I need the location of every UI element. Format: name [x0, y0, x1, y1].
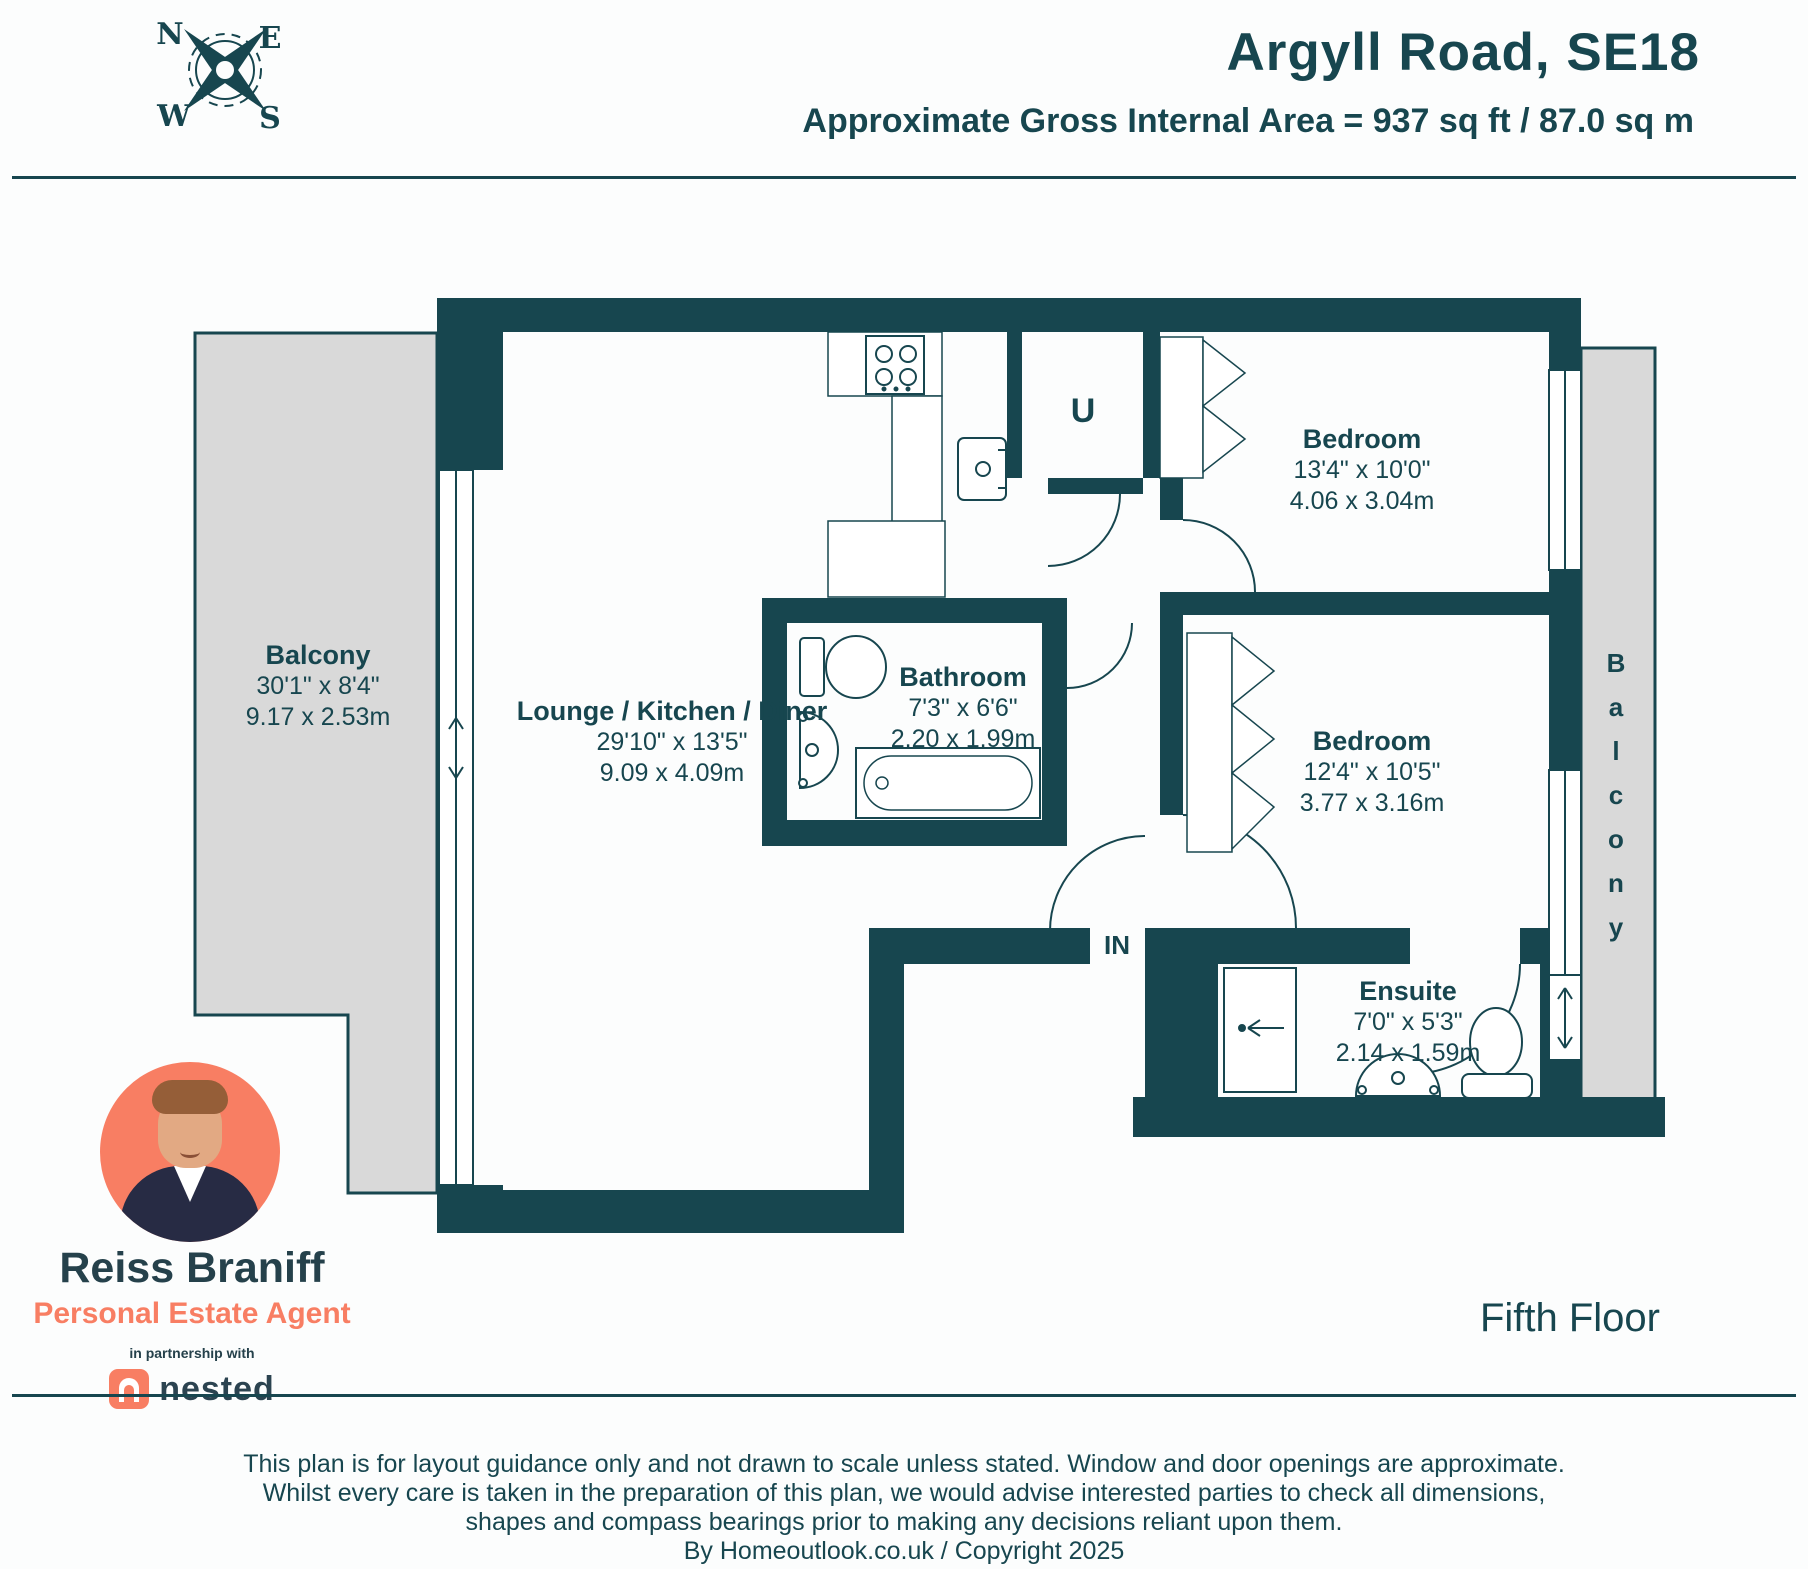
entrance-label: IN — [1104, 930, 1130, 961]
shower-icon — [1224, 968, 1296, 1092]
disclaimer-line: By Homeoutlook.co.uk / Copyright 2025 — [0, 1537, 1808, 1566]
room-label-ensuite: Ensuite 7'0" x 5'3" 2.14 x 1.59m — [1336, 976, 1481, 1069]
room-label-bedroom2: Bedroom 12'4" x 10'5" 3.77 x 3.16m — [1300, 726, 1445, 819]
door-arc-bathroom — [1067, 623, 1132, 688]
door-arc-kitchen-hall — [1048, 494, 1120, 566]
floorplan-page: N E W S Argyll Road, SE18 Approximate Gr… — [0, 0, 1808, 1569]
agent-name: Reiss Braniff — [20, 1244, 364, 1293]
nested-brand-name: nested — [159, 1370, 275, 1409]
wardrobe-icon-bedroom1 — [1160, 337, 1245, 478]
wardrobe-icon-bedroom2 — [1187, 633, 1274, 852]
hob-icon — [866, 336, 924, 394]
bathtub-icon — [856, 748, 1040, 818]
utility-cupboard-label: U — [1071, 392, 1096, 431]
floor-name: Fifth Floor — [1480, 1296, 1660, 1341]
nested-logo-icon — [109, 1369, 149, 1409]
partnership-note: in partnership with — [20, 1345, 364, 1361]
disclaimer-line: shapes and compass bearings prior to mak… — [0, 1508, 1808, 1537]
agent-photo — [100, 1062, 280, 1242]
disclaimer-line: Whilst every care is taken in the prepar… — [0, 1479, 1808, 1508]
agent-role: Personal Estate Agent — [20, 1297, 364, 1331]
nested-brand: nested — [20, 1369, 364, 1409]
washing-machine-icon — [958, 438, 1006, 500]
disclaimer-line: This plan is for layout guidance only an… — [0, 1450, 1808, 1479]
footer-divider — [12, 1394, 1796, 1397]
disclaimer: This plan is for layout guidance only an… — [0, 1450, 1808, 1566]
agent-info: Reiss Braniff Personal Estate Agent in p… — [20, 1244, 364, 1409]
room-label-balcony-left: Balcony 30'1" x 8'4" 9.17 x 2.53m — [246, 640, 391, 733]
door-arc-entrance — [1050, 836, 1145, 931]
room-label-bedroom1: Bedroom 13'4" x 10'0" 4.06 x 3.04m — [1290, 424, 1435, 517]
door-arc-bedroom1 — [1183, 520, 1255, 592]
toilet-icon — [800, 636, 886, 698]
room-label-lounge: Lounge / Kitchen / Diner 29'10" x 13'5" … — [517, 696, 828, 789]
room-label-bathroom: Bathroom 7'3" x 6'6" 2.20 x 1.99m — [891, 662, 1036, 755]
room-label-balcony-right: Balcony — [1600, 648, 1631, 956]
balcony-left-area — [195, 333, 437, 1193]
